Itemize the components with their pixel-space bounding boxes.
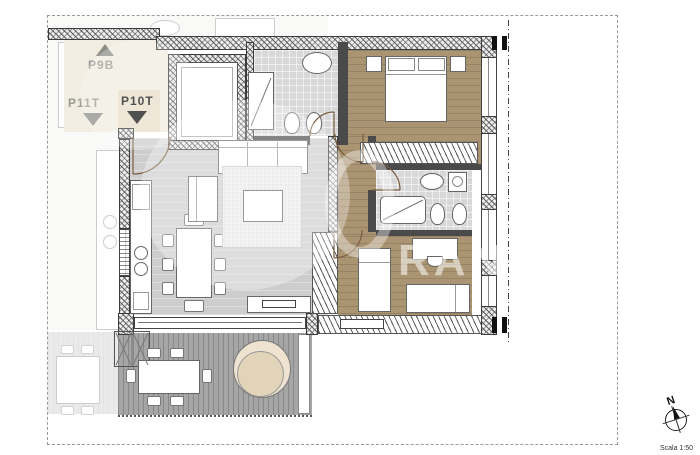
single-bed-vertical [358,248,391,312]
coffee-table [243,190,283,222]
kitchen-fridge [132,184,150,210]
outdoor-chair [170,396,184,406]
adjacent-chair [61,406,74,415]
wall [118,128,134,139]
wardrobe-hallway [312,232,338,314]
kitchen-sink [133,292,149,310]
unit-label-p9b: P9B [88,58,114,72]
adjacent-chair [81,406,94,415]
tv [262,300,296,308]
wall [119,139,130,229]
adjacent-outdoor-table [56,356,100,404]
pillow [418,58,445,71]
desk-chair [427,256,443,267]
north-compass: N [655,395,700,447]
elevator-car-inner [181,67,233,137]
bidet [452,203,467,225]
armchair-back-line [196,177,197,221]
unit-label-p11t: P11T [68,96,100,110]
single-bed-horizontal [406,284,470,313]
dining-chair [162,258,174,271]
cooktop-burner [134,262,148,276]
washing-machine-drum [452,176,463,187]
post [492,317,497,333]
wall [376,230,472,236]
east-wall [481,36,497,335]
bed-line [359,262,390,263]
post [492,36,497,50]
wall [368,190,376,232]
adjacent-burner [103,215,117,229]
nightstand [366,56,382,72]
scale-label: Scala 1:50 [660,445,693,452]
cooktop-burner [134,246,148,260]
nightstand [450,56,466,72]
toilet [284,112,300,134]
bed-blanket-line [386,74,446,75]
sliding-door-living [134,317,306,329]
wall-pier [481,194,497,210]
adjacent-burner [103,235,117,249]
dining-chair [214,258,226,271]
adjacent-chair [61,345,74,354]
sliding-door-glass [138,322,302,323]
outdoor-chair [147,348,161,358]
wall-pier [481,116,497,134]
arrow-down-p10t [127,111,147,124]
floor-plan: P9B P11T P10T [0,0,700,455]
kitchen-window [119,229,130,276]
wall [376,164,481,170]
outdoor-chair [202,369,212,383]
sofa-back-line [219,147,307,148]
post [502,36,507,50]
pillow [388,58,415,71]
bathroom2-sink [420,173,444,190]
armchair [188,176,218,222]
post [502,317,507,333]
outdoor-chair [126,369,136,383]
wall [119,276,130,315]
adjacent-chair [81,345,94,354]
outdoor-chair [170,348,184,358]
terrace-railing [298,334,310,414]
wall [156,36,497,50]
arrow-up-p9b [96,44,114,56]
bathroom1-shower [248,72,274,130]
dining-chair [162,282,174,295]
outdoor-table [138,360,200,394]
dining-table [176,228,212,298]
bathroom1-sink [302,52,332,74]
dining-chair [214,282,226,295]
terrace-tree-inner [237,351,284,397]
unit-label-p10t: P10T [121,94,154,108]
outdoor-chair [147,396,161,406]
wardrobe-master [360,142,478,164]
dining-chair [184,300,204,312]
terrace-perforated-edge [118,414,312,417]
wall [338,42,348,136]
bidet [306,112,322,134]
section-line [508,20,509,345]
bathtub [380,196,426,224]
wall [48,28,160,40]
bedroom2-window-south [340,319,384,329]
bed-line [455,285,456,312]
toilet [430,203,445,225]
wall-pier [481,260,497,276]
adjacent-fixture [215,18,275,37]
east-wall-glassline [488,40,489,330]
dining-chair [162,234,174,247]
wall [328,136,338,232]
wall [306,313,318,335]
arrow-down-p11t [83,113,103,126]
